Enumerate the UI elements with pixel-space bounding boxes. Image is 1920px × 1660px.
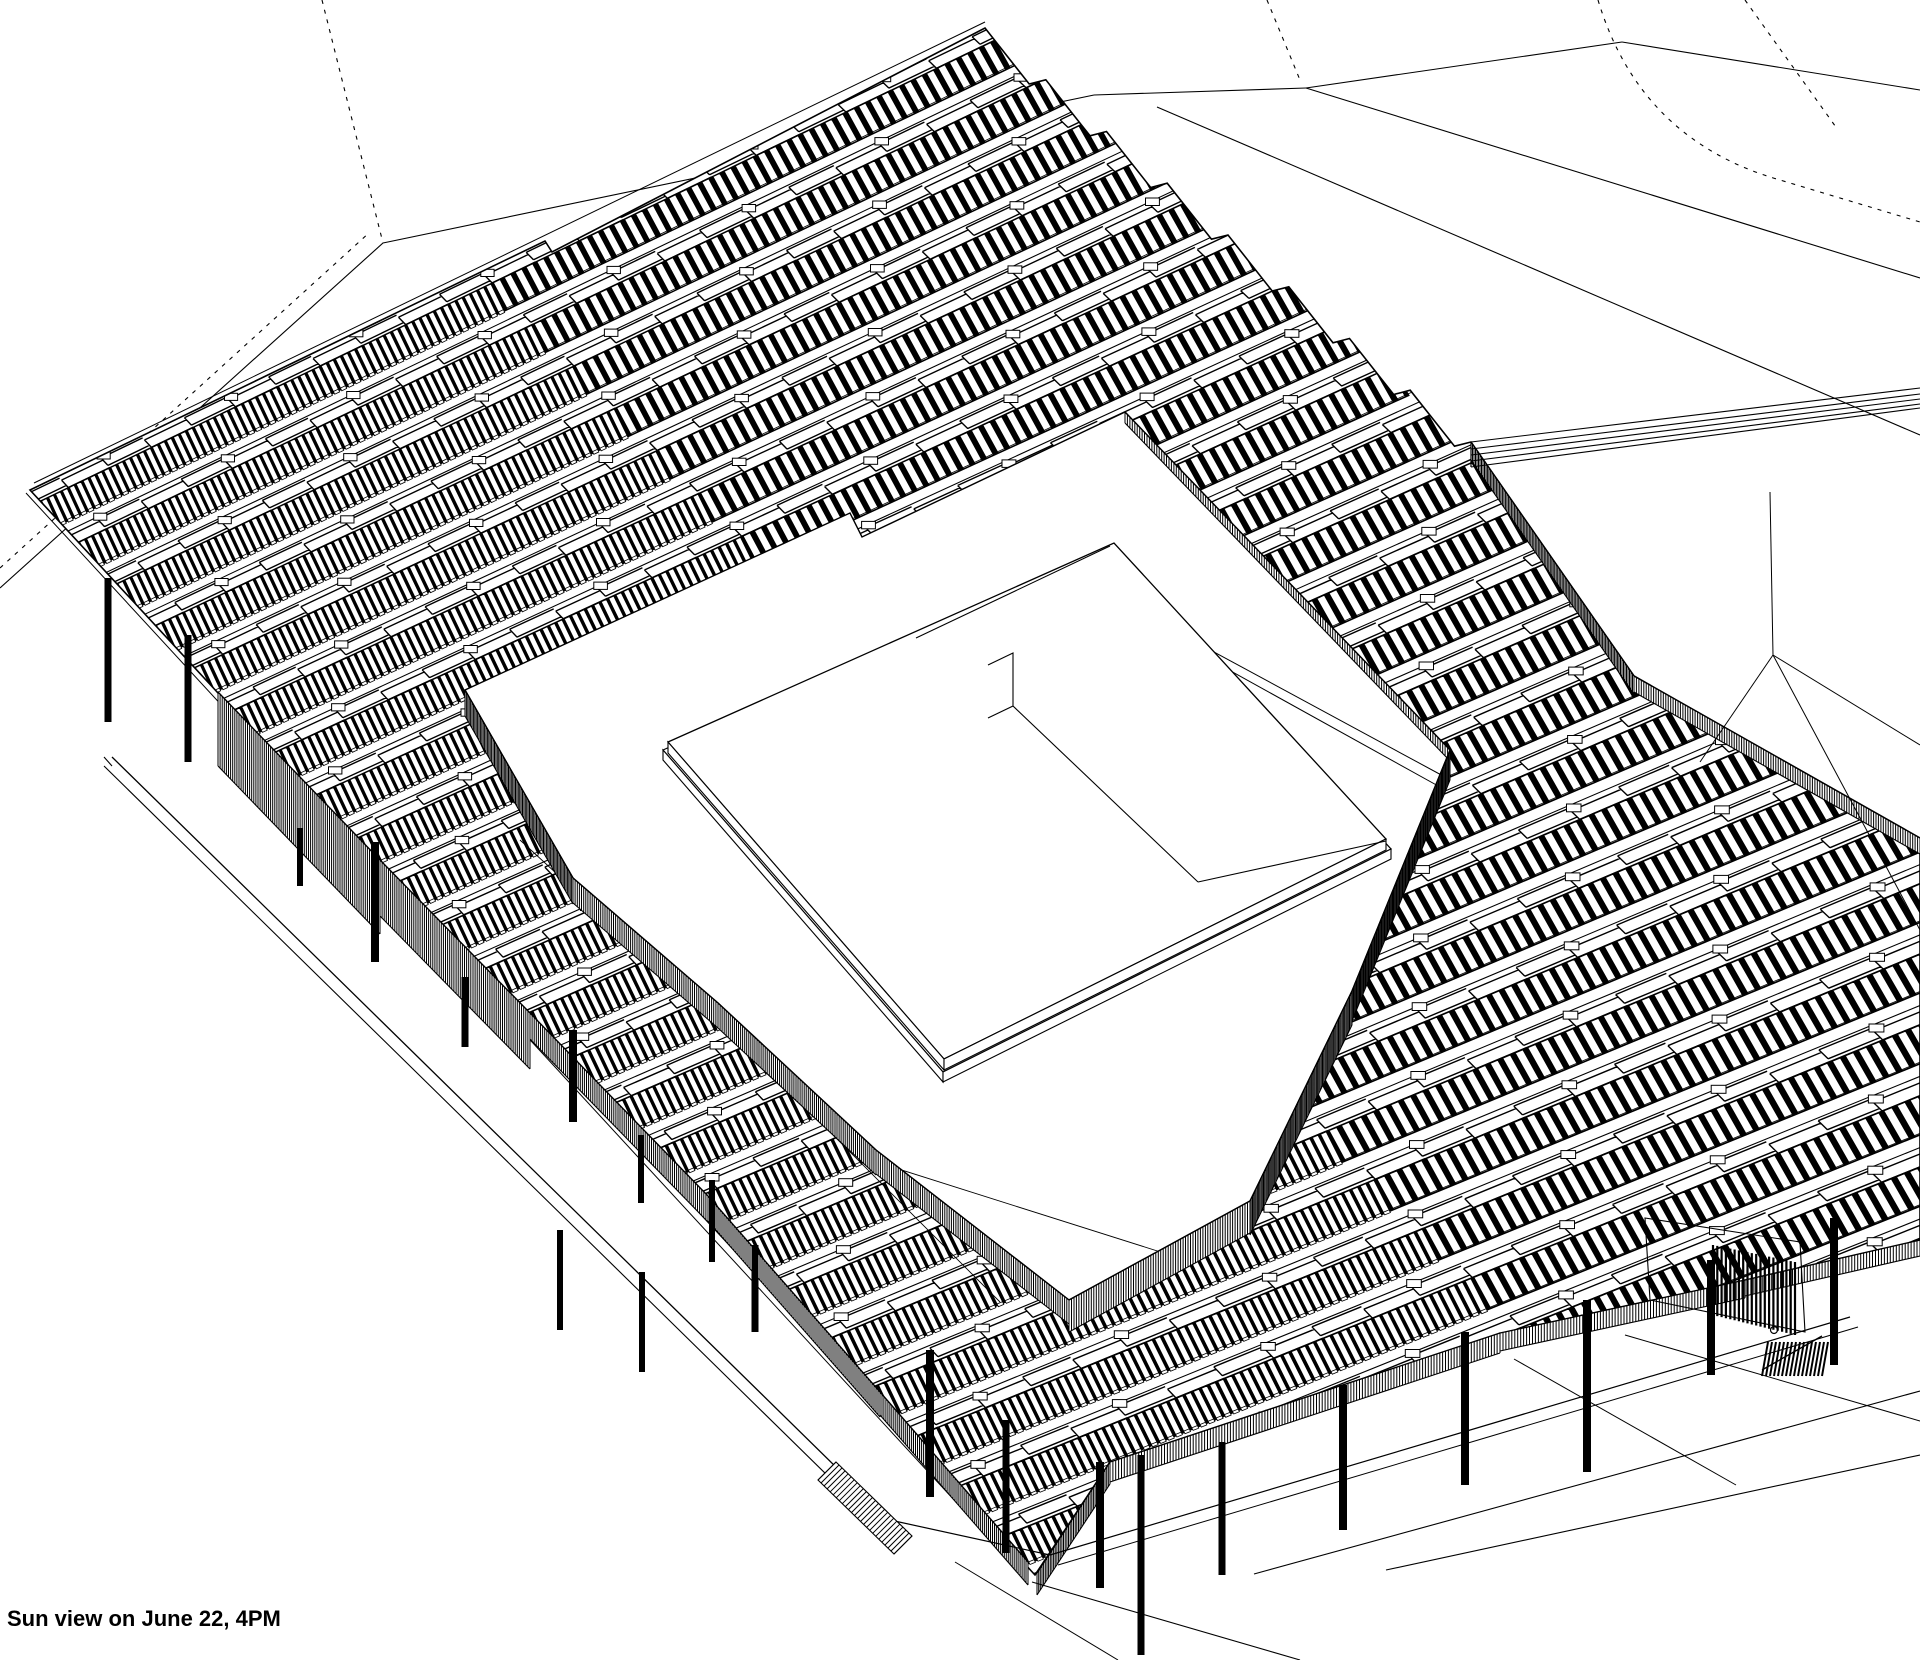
svg-text:Sun view on June 22, 4PM: Sun view on June 22, 4PM (7, 1606, 281, 1631)
